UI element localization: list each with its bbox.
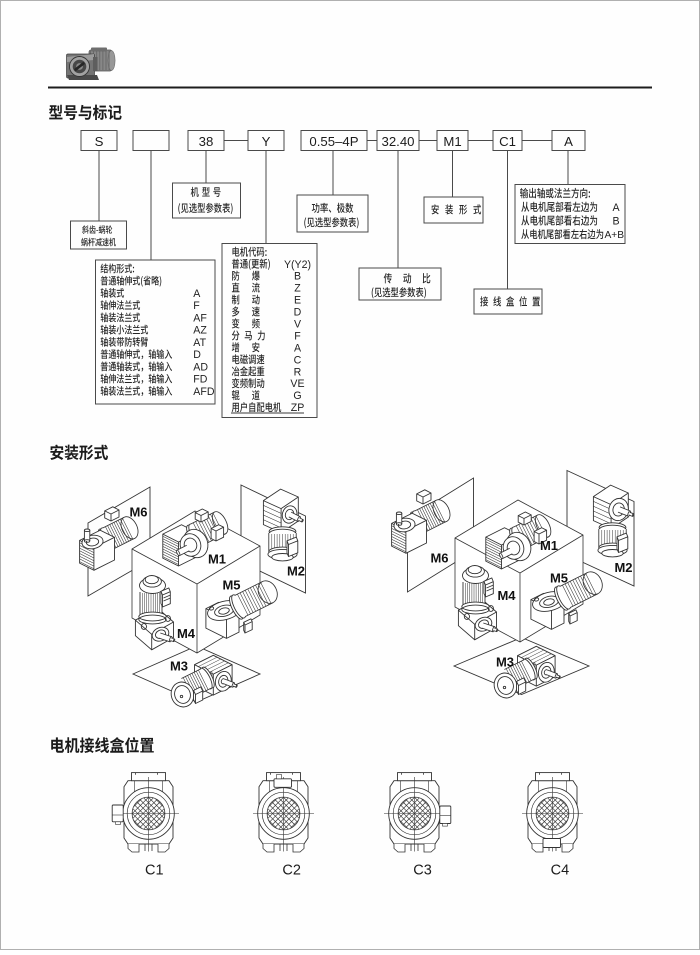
- svg-text:A: A: [294, 342, 302, 354]
- svg-text:M2: M2: [287, 564, 305, 579]
- svg-text:C4: C4: [551, 863, 570, 879]
- svg-text:C3: C3: [413, 863, 432, 879]
- svg-text:Y(Y2): Y(Y2): [284, 259, 311, 271]
- svg-text:G: G: [293, 390, 301, 402]
- svg-text:AFD: AFD: [193, 386, 215, 398]
- svg-text:D: D: [294, 307, 302, 319]
- svg-text:ZP: ZP: [291, 402, 305, 414]
- svg-text:D: D: [193, 349, 201, 361]
- svg-text:A: A: [564, 134, 573, 149]
- svg-text:M3: M3: [496, 655, 514, 670]
- svg-text:AD: AD: [193, 361, 208, 373]
- svg-text:M1: M1: [208, 552, 226, 567]
- svg-text:B: B: [612, 216, 619, 228]
- svg-text:M5: M5: [222, 578, 240, 593]
- svg-text:C1: C1: [145, 863, 164, 879]
- svg-text:C1: C1: [499, 134, 516, 149]
- svg-text:32.40: 32.40: [381, 134, 414, 149]
- svg-text:Y: Y: [262, 134, 271, 149]
- svg-text:S: S: [95, 134, 104, 149]
- svg-text:M4: M4: [177, 626, 196, 641]
- svg-text:V: V: [294, 319, 302, 331]
- svg-text:A: A: [193, 288, 201, 300]
- svg-text:B: B: [294, 271, 301, 283]
- svg-text:FD: FD: [193, 374, 207, 386]
- svg-text:M6: M6: [430, 551, 448, 566]
- svg-text:R: R: [294, 366, 302, 378]
- svg-text:E: E: [294, 295, 301, 307]
- svg-text:VE: VE: [290, 378, 304, 390]
- svg-text:M1: M1: [443, 134, 461, 149]
- svg-text:C2: C2: [282, 863, 301, 879]
- svg-text:Z: Z: [294, 283, 301, 295]
- svg-text:AF: AF: [193, 312, 207, 324]
- svg-text:A+B: A+B: [604, 230, 624, 241]
- svg-text:M5: M5: [550, 571, 568, 586]
- svg-text:F: F: [193, 300, 200, 312]
- svg-text:M3: M3: [170, 659, 188, 674]
- svg-text:M1: M1: [540, 538, 558, 553]
- svg-text:C: C: [294, 354, 302, 366]
- svg-text:M6: M6: [129, 505, 147, 520]
- svg-text:M2: M2: [614, 560, 632, 575]
- svg-text:F: F: [294, 330, 301, 342]
- svg-text:M4: M4: [497, 588, 516, 603]
- svg-text:38: 38: [199, 134, 214, 149]
- svg-text:0.55–4P: 0.55–4P: [309, 134, 358, 149]
- svg-text:AZ: AZ: [193, 325, 207, 337]
- svg-text:AT: AT: [193, 337, 206, 349]
- svg-text:A: A: [612, 202, 620, 214]
